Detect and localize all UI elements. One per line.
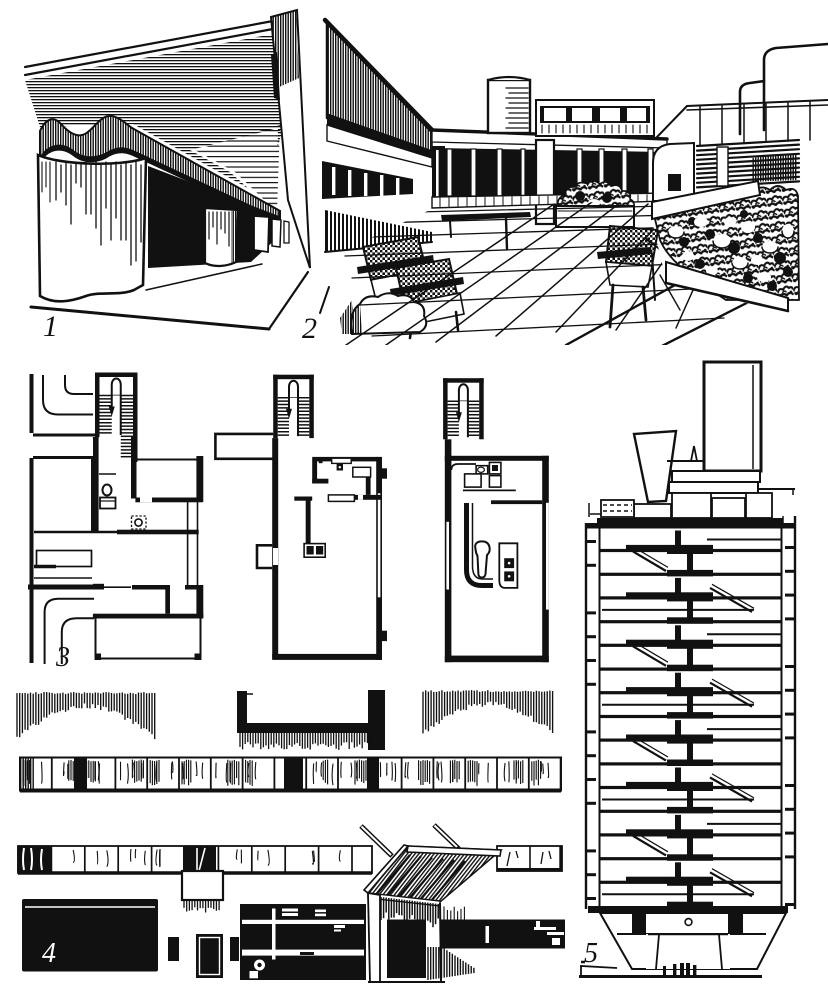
svg-text:5: 5: [584, 938, 598, 969]
svg-text:4: 4: [42, 938, 56, 969]
svg-text:2: 2: [302, 312, 317, 345]
svg-text:3: 3: [55, 642, 70, 673]
svg-text:1: 1: [43, 310, 58, 343]
